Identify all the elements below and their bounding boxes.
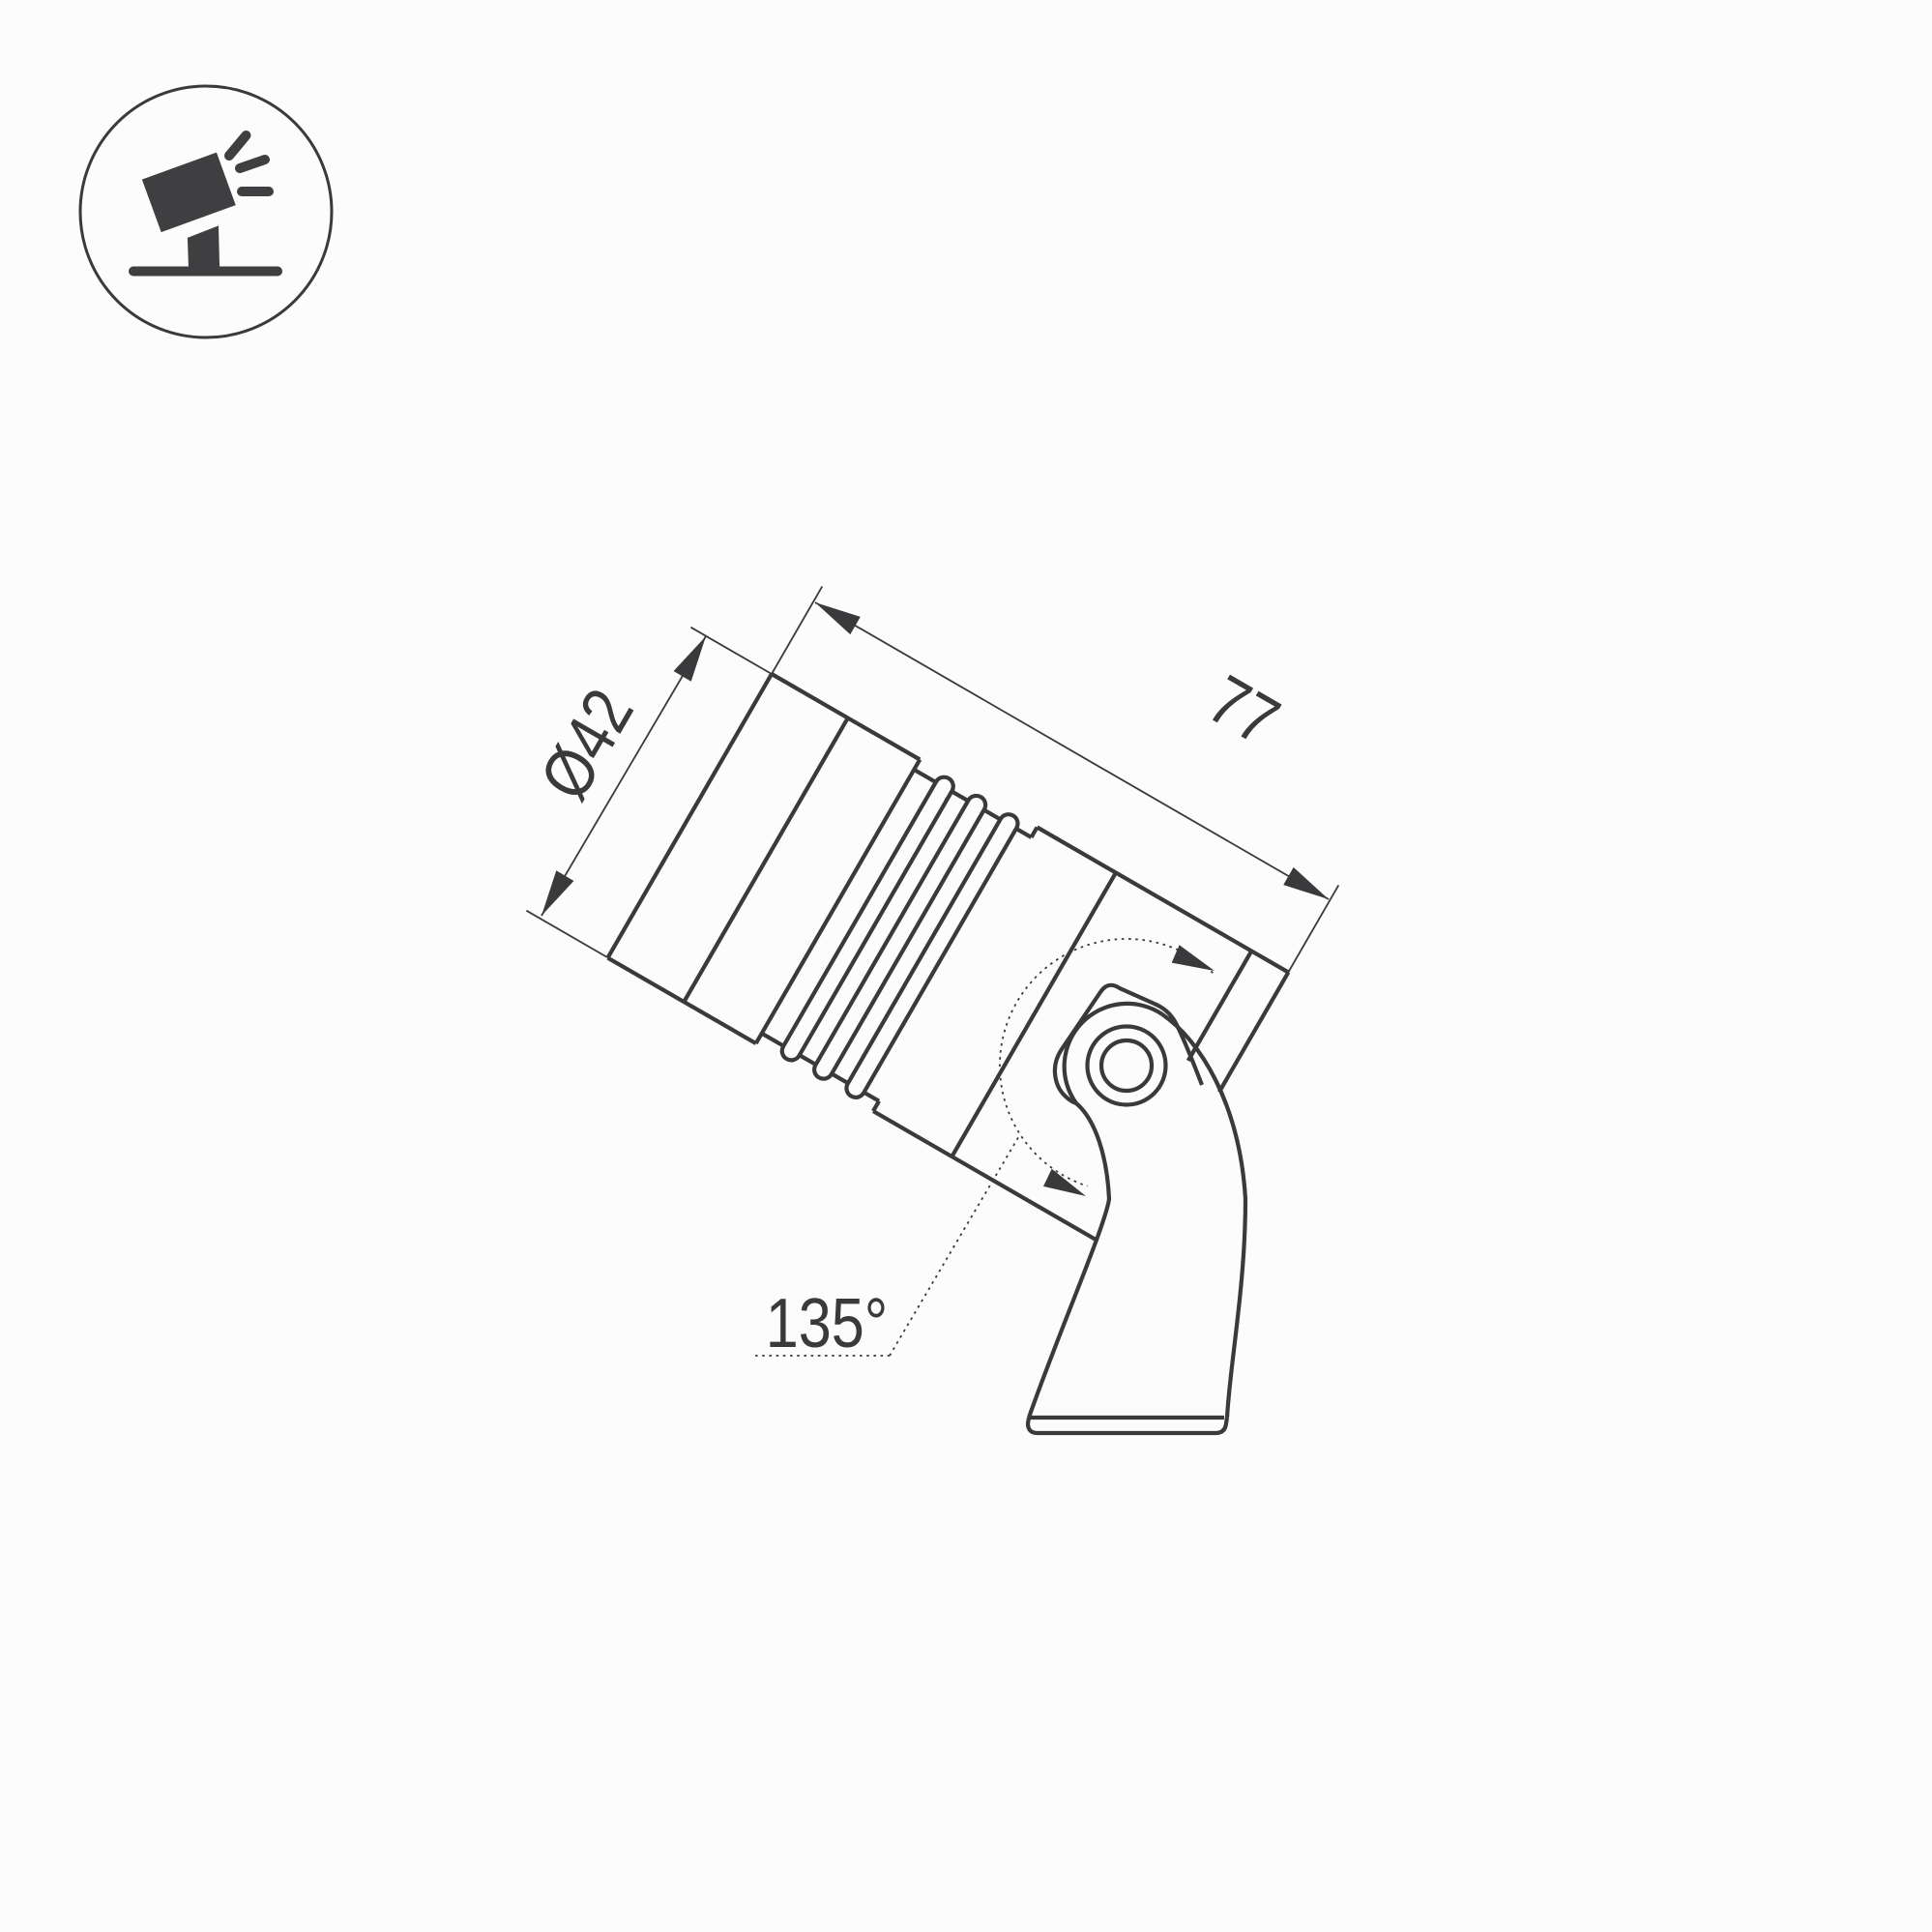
svg-text:135°: 135° (766, 1285, 889, 1362)
